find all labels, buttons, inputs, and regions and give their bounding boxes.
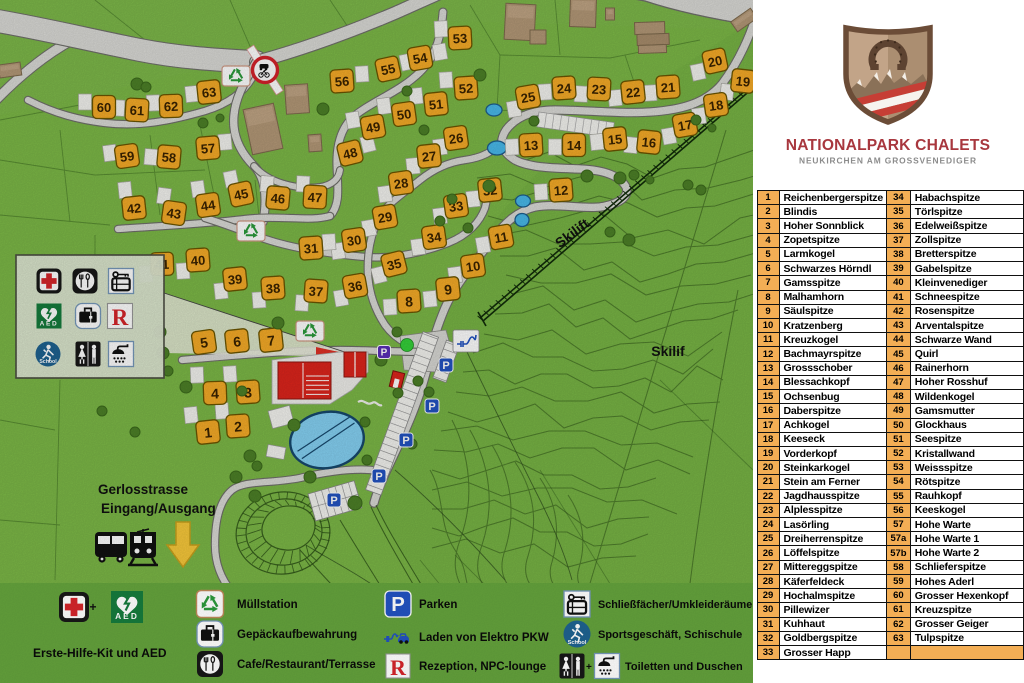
svg-text:NATIONALPARK CHALETS: NATIONALPARK CHALETS xyxy=(786,137,990,154)
svg-text:NEUKIRCHEN AM GROSSVENEDIGER: NEUKIRCHEN AM GROSSVENEDIGER xyxy=(799,156,977,166)
